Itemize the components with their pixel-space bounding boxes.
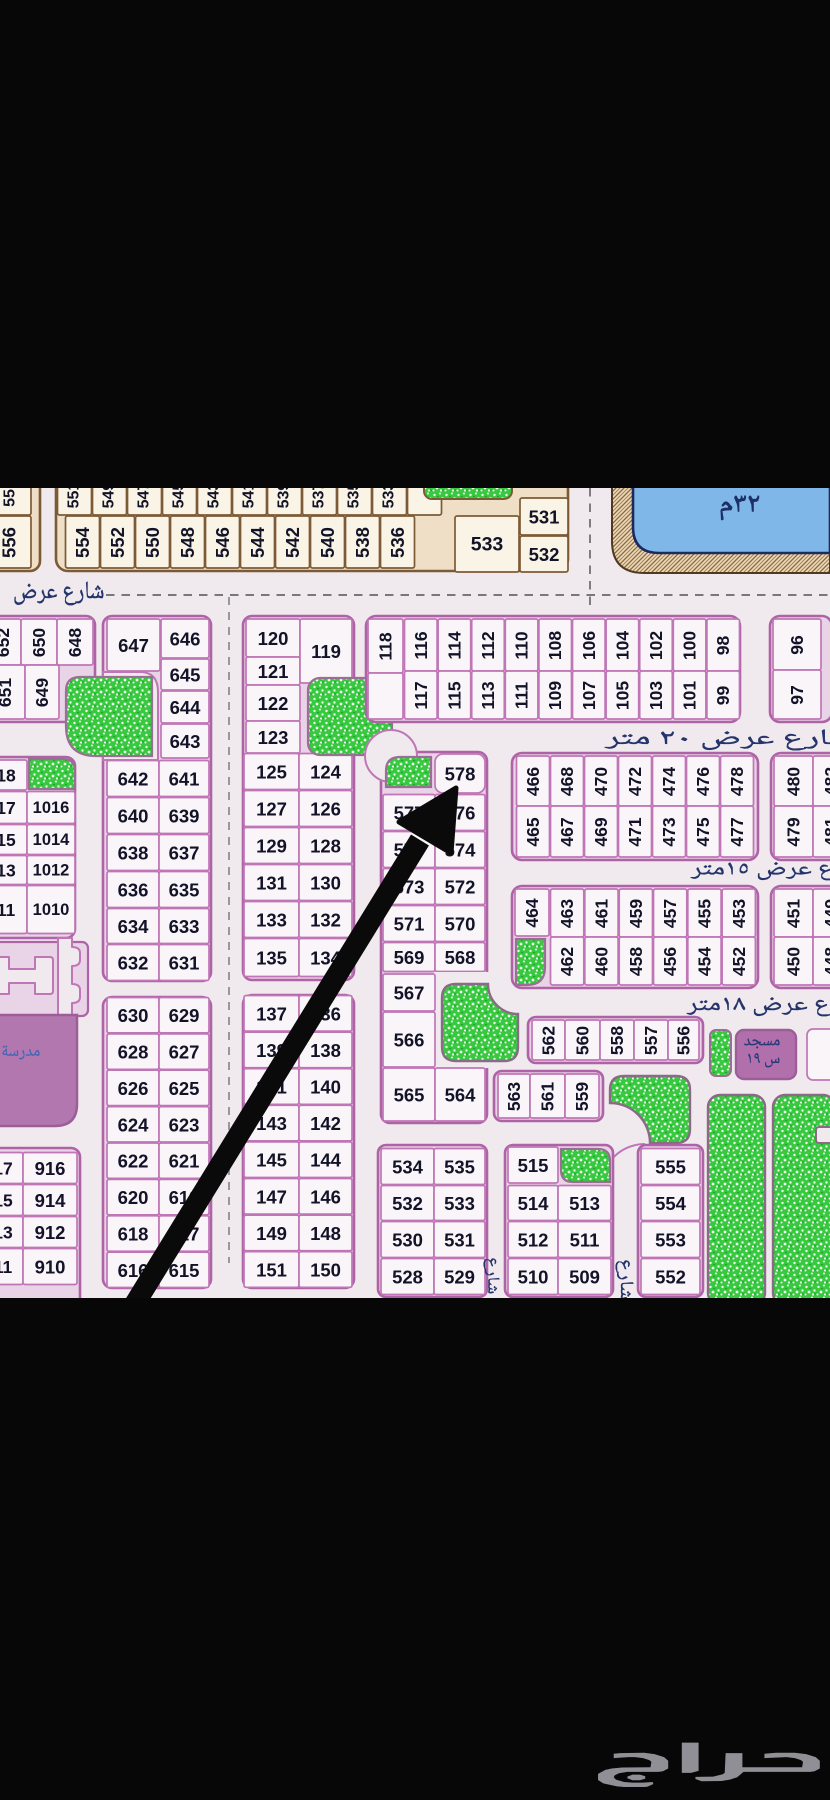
svg-text:119: 119 [311,641,341,662]
svg-text:621: 621 [169,1151,200,1172]
svg-text:129: 129 [256,836,287,857]
svg-text:650: 650 [29,628,49,657]
svg-text:460: 460 [592,947,612,976]
svg-text:631: 631 [169,953,200,974]
svg-text:513: 513 [569,1193,600,1214]
svg-text:468: 468 [557,767,577,796]
svg-text:145: 145 [256,1150,287,1171]
svg-text:469: 469 [591,817,611,846]
svg-text:144: 144 [310,1150,342,1171]
svg-text:643: 643 [170,731,201,752]
svg-text:578: 578 [445,764,476,785]
svg-text:553: 553 [655,1230,686,1251]
svg-text:532: 532 [529,544,560,565]
svg-text:622: 622 [118,1151,149,1172]
svg-text:97: 97 [787,685,807,704]
svg-text:637: 637 [169,843,200,864]
svg-text:642: 642 [118,769,149,790]
svg-text:561: 561 [538,1082,558,1111]
svg-text:127: 127 [256,799,287,820]
svg-text:100: 100 [680,631,700,660]
svg-text:571: 571 [394,914,425,935]
svg-text:652: 652 [0,628,13,657]
svg-text:629: 629 [169,1005,200,1026]
svg-text:476: 476 [693,767,713,796]
svg-text:470: 470 [591,767,611,796]
svg-text:638: 638 [118,843,149,864]
svg-text:106: 106 [579,631,599,660]
svg-text:15: 15 [0,830,16,850]
svg-text:465: 465 [523,817,543,846]
svg-text:1010: 1010 [33,901,70,919]
svg-text:137: 137 [256,1003,287,1024]
svg-text:110: 110 [512,631,532,659]
svg-text:103: 103 [646,681,666,710]
svg-text:133: 133 [256,910,287,931]
svg-text:548: 548 [177,527,198,558]
svg-text:459: 459 [626,899,646,928]
svg-text:121: 121 [258,661,289,682]
svg-text:102: 102 [646,631,666,660]
svg-text:531: 531 [444,1230,475,1251]
svg-text:635: 635 [169,880,200,901]
svg-text:647: 647 [118,635,149,656]
svg-text:480: 480 [784,767,804,796]
svg-text:564: 564 [445,1085,477,1106]
svg-text:914: 914 [35,1190,67,1211]
svg-text:558: 558 [607,1026,627,1055]
svg-text:559: 559 [572,1082,592,1111]
svg-text:910: 910 [35,1257,66,1278]
svg-text:529: 529 [444,1267,475,1288]
svg-text:615: 615 [169,1260,200,1281]
svg-text:1012: 1012 [33,862,70,880]
svg-text:618: 618 [118,1223,149,1244]
svg-text:147: 147 [256,1186,287,1207]
svg-text:560: 560 [573,1026,593,1055]
svg-text:150: 150 [310,1260,341,1281]
svg-text:458: 458 [626,947,646,976]
svg-text:550: 550 [142,527,163,558]
svg-text:544: 544 [247,526,268,558]
svg-text:96: 96 [787,635,807,655]
svg-text:623: 623 [169,1114,200,1135]
svg-text:572: 572 [445,877,476,898]
svg-text:1014: 1014 [33,831,71,849]
svg-text:454: 454 [695,947,715,976]
svg-text:628: 628 [118,1042,149,1063]
svg-text:101: 101 [680,681,700,710]
svg-text:510: 510 [518,1267,549,1288]
svg-text:626: 626 [118,1078,149,1099]
svg-text:135: 135 [256,948,287,969]
svg-text:630: 630 [118,1005,149,1026]
svg-text:115: 115 [444,681,464,709]
svg-text:116: 116 [411,631,431,659]
svg-text:111: 111 [512,682,532,710]
svg-text:538: 538 [352,527,373,558]
svg-text:515: 515 [518,1155,549,1176]
svg-text:11: 11 [0,900,16,920]
svg-text:633: 633 [169,916,200,937]
svg-text:450: 450 [784,947,804,976]
svg-text:556: 556 [0,527,20,558]
svg-text:15: 15 [0,1191,13,1211]
svg-text:122: 122 [258,693,289,714]
svg-text:534: 534 [392,1157,424,1178]
svg-text:648: 648 [65,628,85,657]
svg-text:457: 457 [660,899,680,928]
svg-text:112: 112 [478,631,498,659]
svg-text:552: 552 [655,1267,686,1288]
svg-text:17: 17 [0,798,16,818]
svg-text:17: 17 [0,1159,13,1179]
svg-text:474: 474 [659,767,679,796]
svg-text:645: 645 [170,665,201,686]
svg-text:533: 533 [444,1193,475,1214]
svg-text:462: 462 [557,947,577,976]
svg-text:511: 511 [570,1230,600,1251]
svg-text:620: 620 [118,1187,149,1208]
svg-text:113: 113 [478,681,498,709]
svg-text:464: 464 [522,898,542,927]
svg-text:130: 130 [310,873,341,894]
svg-text:132: 132 [310,910,341,931]
svg-text:151: 151 [256,1260,287,1281]
svg-text:124: 124 [310,762,342,783]
svg-text:557: 557 [641,1026,661,1055]
svg-text:473: 473 [659,817,679,846]
svg-text:567: 567 [394,983,425,1004]
svg-text:481: 481 [821,817,830,846]
svg-text:624: 624 [118,1114,150,1135]
svg-text:651: 651 [0,678,15,707]
svg-text:466: 466 [523,767,543,796]
svg-text:639: 639 [169,806,200,827]
svg-text:912: 912 [35,1222,66,1243]
svg-text:634: 634 [118,916,150,937]
svg-text:479: 479 [784,817,804,846]
svg-text:107: 107 [579,681,599,710]
svg-text:146: 146 [310,1186,341,1207]
svg-text:125: 125 [256,762,287,783]
svg-text:453: 453 [729,899,749,928]
svg-text:555: 555 [655,1157,686,1178]
svg-text:13: 13 [0,1223,13,1243]
svg-text:528: 528 [392,1267,423,1288]
svg-text:123: 123 [258,727,289,748]
svg-text:535: 535 [444,1157,475,1178]
svg-text:463: 463 [557,899,577,928]
svg-text:536: 536 [387,527,408,558]
svg-text:556: 556 [674,1026,694,1055]
svg-text:98: 98 [713,636,733,656]
svg-text:13: 13 [0,861,16,881]
svg-text:568: 568 [445,947,476,968]
svg-text:554: 554 [72,526,93,558]
svg-text:126: 126 [310,799,341,820]
svg-text:149: 149 [256,1223,287,1244]
svg-text:482: 482 [821,767,830,796]
svg-text:18: 18 [0,766,16,786]
svg-text:104: 104 [612,631,632,660]
svg-text:566: 566 [394,1030,425,1051]
svg-text:109: 109 [545,681,565,710]
svg-text:644: 644 [170,697,202,718]
svg-text:916: 916 [35,1158,66,1179]
svg-text:448: 448 [821,947,830,976]
svg-text:118: 118 [376,632,396,660]
svg-text:1016: 1016 [33,799,70,817]
svg-text:55: 55 [2,489,19,507]
svg-text:472: 472 [625,767,645,796]
svg-text:646: 646 [170,629,201,650]
svg-text:477: 477 [727,817,747,846]
svg-text:569: 569 [394,947,425,968]
svg-text:636: 636 [118,880,149,901]
svg-text:451: 451 [784,899,804,928]
svg-text:475: 475 [693,817,713,846]
svg-text:117: 117 [411,681,431,709]
svg-text:565: 565 [394,1085,425,1106]
svg-text:509: 509 [569,1267,600,1288]
svg-text:531: 531 [529,507,560,528]
svg-text:140: 140 [310,1077,341,1098]
svg-text:467: 467 [557,817,577,846]
svg-text:455: 455 [695,899,715,928]
svg-text:540: 540 [317,527,338,558]
svg-text:563: 563 [504,1082,524,1111]
svg-text:142: 142 [310,1113,341,1134]
svg-text:570: 570 [445,914,476,935]
svg-text:532: 532 [392,1193,423,1214]
svg-text:105: 105 [612,681,632,710]
svg-text:632: 632 [118,953,149,974]
svg-text:641: 641 [169,769,200,790]
svg-text:99: 99 [713,686,733,706]
svg-text:627: 627 [169,1042,200,1063]
svg-text:530: 530 [392,1230,423,1251]
svg-text:649: 649 [32,678,52,707]
svg-text:461: 461 [592,899,612,928]
svg-text:546: 546 [212,527,233,558]
svg-text:554: 554 [655,1193,687,1214]
svg-text:640: 640 [118,806,149,827]
svg-text:452: 452 [729,947,749,976]
svg-text:625: 625 [169,1078,200,1099]
svg-text:120: 120 [258,628,289,649]
svg-text:148: 148 [310,1223,341,1244]
svg-text:11: 11 [0,1257,13,1277]
svg-text:131: 131 [256,873,287,894]
svg-text:449: 449 [821,899,830,928]
svg-text:128: 128 [310,836,341,857]
svg-text:471: 471 [625,817,645,846]
svg-text:562: 562 [539,1026,559,1055]
svg-text:138: 138 [310,1040,341,1061]
svg-text:514: 514 [518,1193,550,1214]
svg-text:478: 478 [727,767,747,796]
svg-text:542: 542 [282,527,303,558]
svg-text:552: 552 [107,527,128,558]
svg-text:533: 533 [471,534,504,556]
svg-text:108: 108 [545,631,565,660]
svg-text:512: 512 [518,1230,549,1251]
svg-text:114: 114 [444,631,464,659]
svg-text:456: 456 [660,947,680,976]
